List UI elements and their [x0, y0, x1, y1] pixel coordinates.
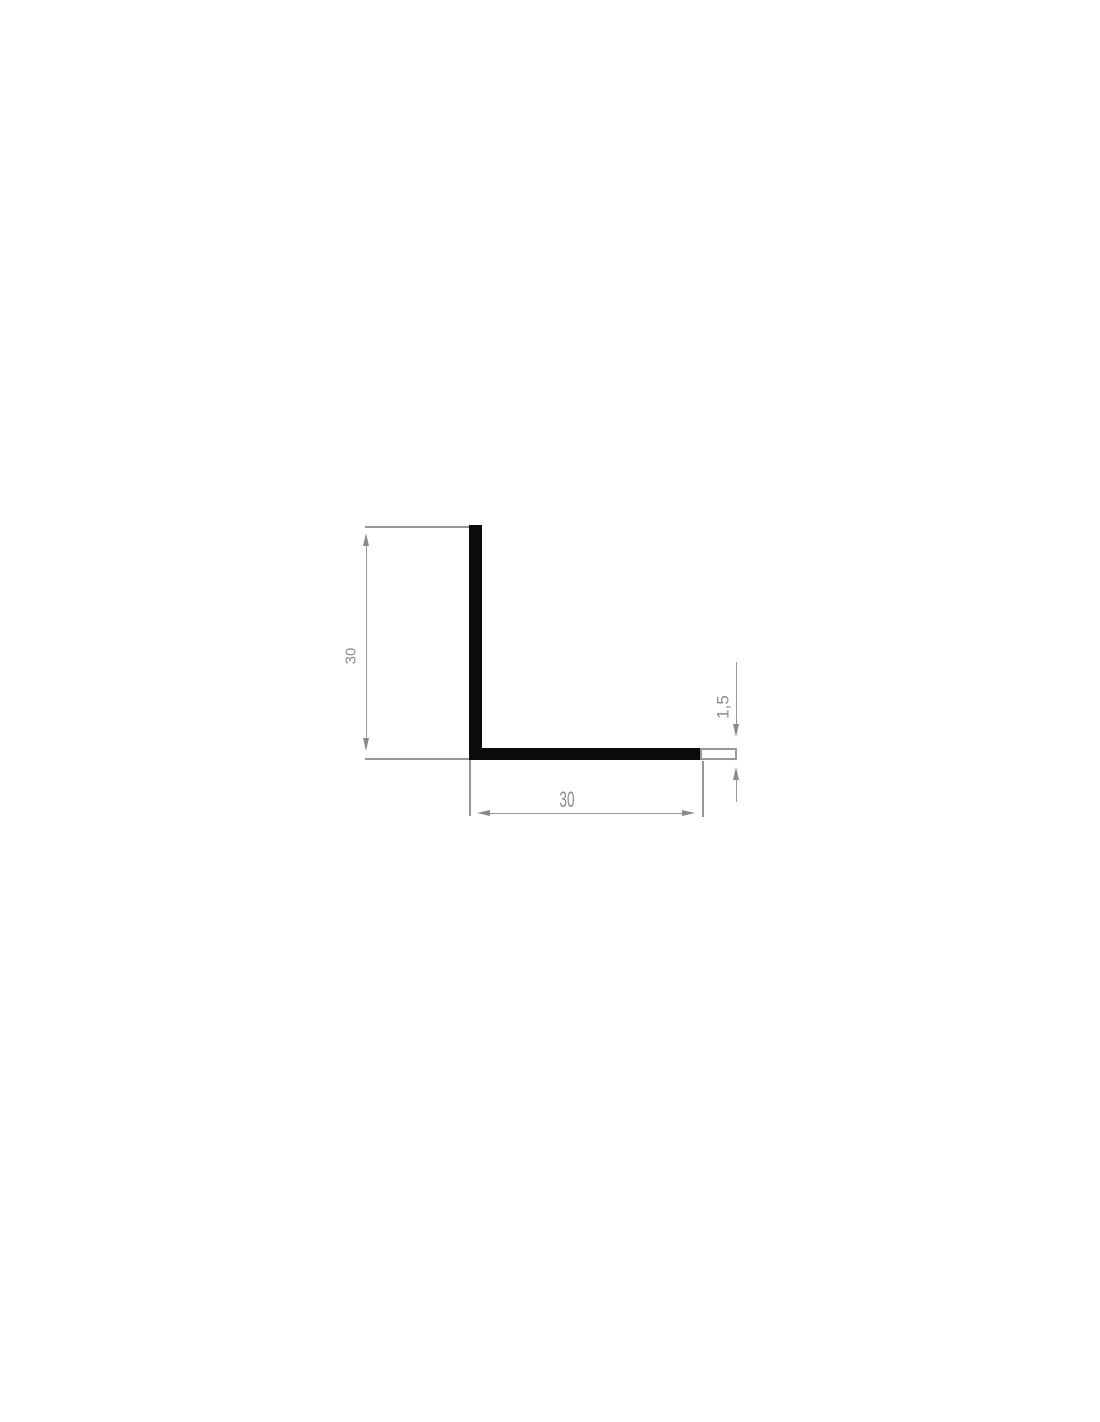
- arrow-up-icon: [363, 533, 369, 546]
- profile-vertical-leg: [469, 525, 482, 760]
- profile-tip-thickness-outline: [700, 748, 737, 760]
- height-dimension-label: 30: [344, 648, 359, 665]
- extension-line-right: [702, 761, 704, 817]
- extension-line-bottom: [365, 758, 469, 760]
- extension-line-left: [469, 760, 471, 816]
- arrow-right-icon: [682, 810, 695, 816]
- thickness-leader-line-bottom: [736, 778, 738, 802]
- width-dimension-label: 30: [559, 789, 574, 811]
- arrow-down-icon: [363, 738, 369, 751]
- thickness-arrow-down-icon: [733, 724, 739, 737]
- extension-line-top: [365, 526, 469, 528]
- horizontal-dimension-line: [489, 813, 683, 815]
- thickness-dimension-label: 1,5: [715, 695, 732, 719]
- vertical-dimension-line: [366, 544, 368, 740]
- profile-horizontal-leg: [469, 748, 702, 760]
- thickness-leader-line-top: [736, 662, 738, 724]
- technical-drawing-canvas: 30 30 1,5: [0, 0, 1100, 1422]
- arrow-left-icon: [477, 810, 490, 816]
